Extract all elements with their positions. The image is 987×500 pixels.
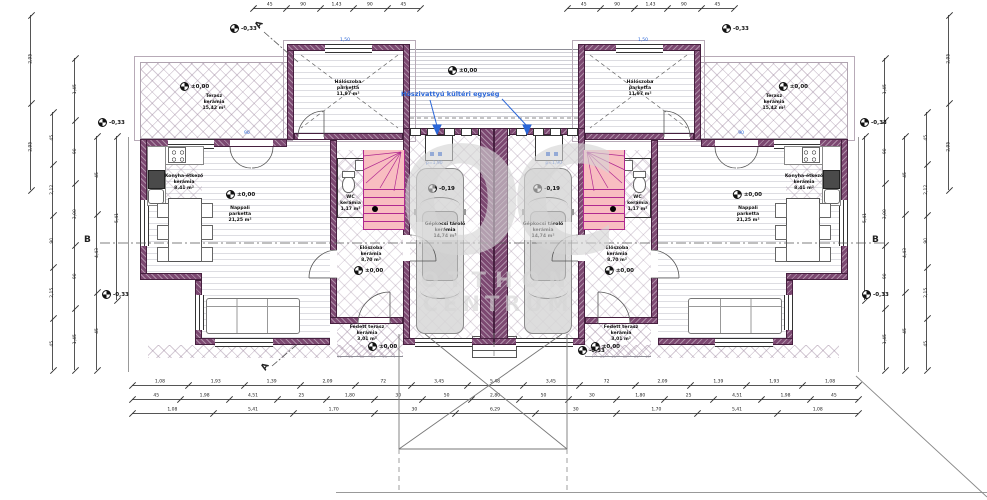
section-marker-b-left: B — [84, 235, 91, 245]
plan-overlay-linework — [0, 0, 987, 500]
survey-point-icon — [98, 118, 107, 127]
survey-point-icon — [860, 118, 869, 127]
level-marker-site: -0,33 — [102, 290, 129, 299]
survey-point-icon — [448, 66, 457, 75]
level-marker-site: -0,33 — [98, 118, 125, 127]
level-marker-site: -0,33 — [862, 290, 889, 299]
survey-point-icon — [862, 290, 871, 299]
survey-point-icon — [578, 346, 587, 355]
heat-pump-callout: Hőszivattyú kültéri egység — [401, 90, 521, 98]
survey-point-icon — [722, 24, 731, 33]
level-marker-site: -0,33 — [578, 346, 605, 355]
floor-plan-canvas: p=1,90 Teraszkerámia15,42 m² ±0,00 Hálós… — [0, 0, 987, 500]
level-marker-site: -0,33 — [860, 118, 887, 127]
survey-point-icon — [230, 24, 239, 33]
level-marker-deck: ±0,00 — [448, 66, 477, 75]
section-marker-b-right: B — [872, 235, 879, 245]
survey-point-icon — [102, 290, 111, 299]
level-marker-site: -0,33 — [722, 24, 749, 33]
